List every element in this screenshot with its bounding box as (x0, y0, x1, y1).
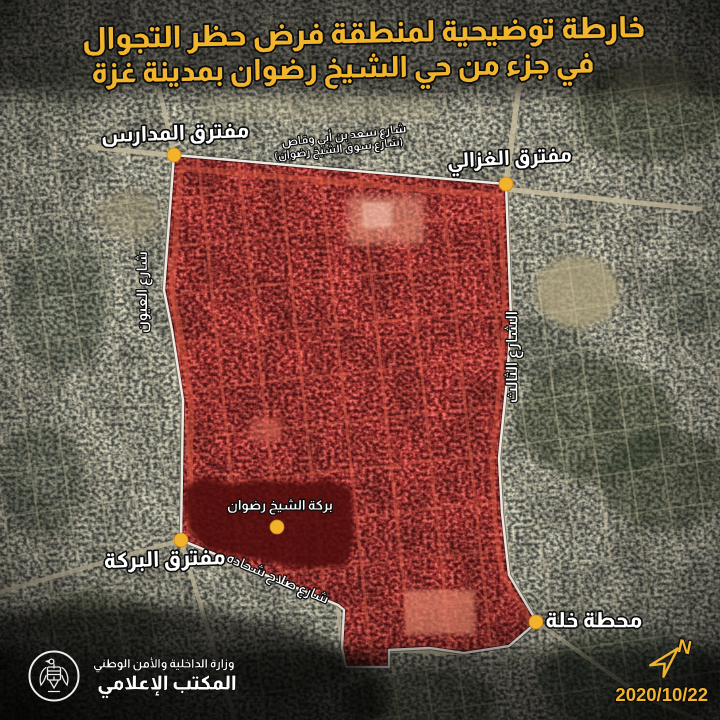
svg-text:2020/10/22: 2020/10/22 (615, 684, 708, 705)
